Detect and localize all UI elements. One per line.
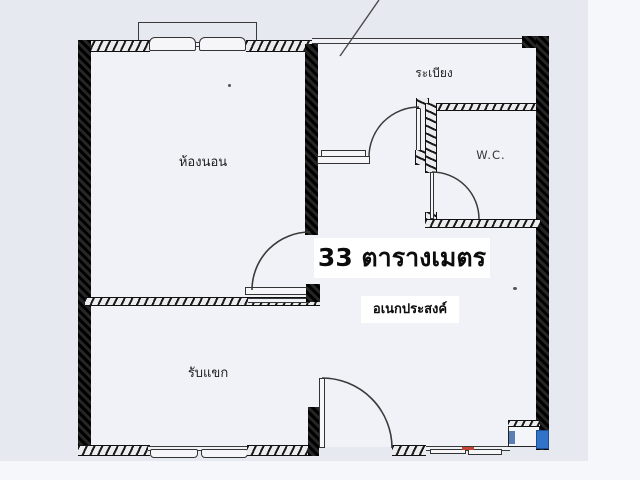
scan-speck-1	[228, 84, 231, 87]
bedroom-label: ห้องนอน	[158, 151, 248, 172]
balcony-door-arc	[369, 107, 419, 157]
wc-door-arc	[432, 172, 479, 219]
balcony-label: ระเบียง	[398, 64, 470, 83]
annotation-leader-line	[340, 0, 379, 56]
multipurpose-label: อเนกประสงค์	[361, 296, 459, 323]
floor-plan-canvas: ห้องนอน ระเบียง W.C. รับแขก 33 ตารางเมตร…	[0, 0, 640, 480]
living-room-label: รับแขก	[166, 362, 250, 383]
scan-speck-2	[513, 287, 517, 290]
wc-label: W.C.	[468, 148, 514, 162]
total-area-label: 33 ตารางเมตร	[314, 238, 490, 278]
bedroom-door-arc	[252, 232, 310, 290]
entrance-door-arc	[322, 378, 392, 448]
